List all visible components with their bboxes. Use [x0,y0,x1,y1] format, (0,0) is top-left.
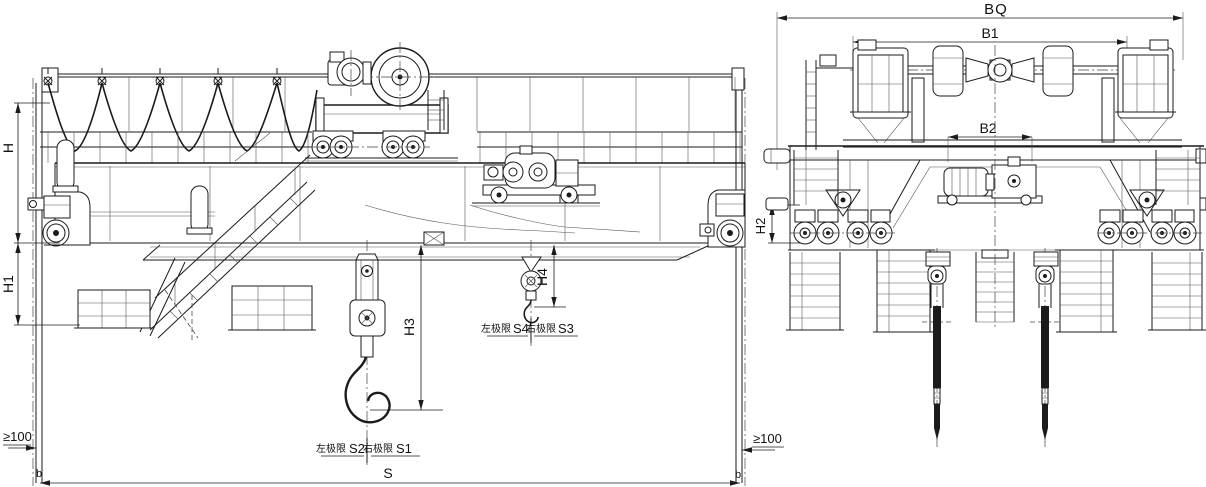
dim-b2: B2 [948,120,1032,162]
end-truck-left [28,192,90,246]
rope-drum-right-end [1043,46,1073,96]
drive-motor [328,50,371,96]
end-truck-right [700,190,745,247]
main-trolley [305,42,458,161]
end-view: BQ B1 [753,1,1206,447]
dim-bq-label: BQ [984,1,1008,18]
ladder-grid-outer-left [786,252,844,330]
dim-h4-label: H4 [534,268,550,286]
crab-bogie-left [850,40,911,118]
clearance-left-label: ≥100 [3,429,32,444]
main-hook-limit-labels: 左极限 S2 右极限 S1 [316,438,420,463]
runway-rail-right [736,78,745,486]
rail-b-left-label: b [36,468,42,480]
electrical-cabinet-b [228,286,316,330]
ladder-grid-outer-right [1148,252,1206,330]
wheel-group-right [1098,210,1202,244]
aux-trolley [472,146,600,206]
shaft-coupling [966,58,1034,82]
bollard-left [53,140,78,192]
dim-h2: H2 [753,205,800,243]
runway-rail-left [33,78,42,486]
rail-b-right-label: b [735,469,741,481]
main-hook-assembly [346,240,390,466]
bollard-stair [187,186,212,234]
aux-hook-right-limit-dim: S3 [558,321,574,336]
hook-side-view-left [922,248,952,447]
dim-h1-label: H1 [0,275,16,293]
dim-h3-label: H3 [401,318,417,336]
main-hook-right-limit-label: 右极限 [363,442,393,455]
crane-engineering-drawing: H H1 H3 H4 左极限 S2 右极限 S1 [0,0,1206,487]
main-hook [346,357,390,422]
crab-bogie-right [1115,40,1176,118]
travel-drive [938,157,1042,205]
walkway-railing-left [40,132,312,163]
main-hook-right-limit-dim: S1 [396,441,412,456]
dim-h2-label: H2 [753,218,768,235]
bridge-girder [55,163,745,247]
access-ladder-top [806,55,853,150]
span-dim-label: S [383,465,392,481]
trolley-wheels [310,131,430,158]
aux-hook-right-limit-label: 右极限 [526,322,556,335]
dim-h4: H4 [534,245,566,307]
span-dimension: S [40,465,740,483]
front-view: H H1 H3 H4 左极限 S2 右极限 S1 [0,42,784,486]
clearance-right-label: ≥100 [753,431,782,446]
dim-h1: H1 [0,243,80,325]
hoist-drum [362,42,438,112]
dim-b1-label: B1 [981,25,998,41]
side-ladder-upper-right [1156,150,1200,205]
dim-h-label: H [0,143,16,153]
ladder-grid-inner-left [873,250,934,332]
main-hook-left-limit-label: 左极限 [316,442,346,455]
drawing-canvas: H H1 H3 H4 左极限 S2 右极限 S1 [0,0,1206,487]
lower-beam [143,245,710,260]
aux-hook-left-limit-label: 左极限 [481,322,511,335]
ladder-grid-inner-right [1056,250,1117,332]
festoon-wires [48,83,317,151]
buffer-left-end-view [764,149,790,210]
rope-drum-left-end [933,46,963,96]
hook-side-view-right [1030,248,1060,447]
dim-b2-label: B2 [979,120,996,136]
electrical-cabinet-a [74,290,154,328]
